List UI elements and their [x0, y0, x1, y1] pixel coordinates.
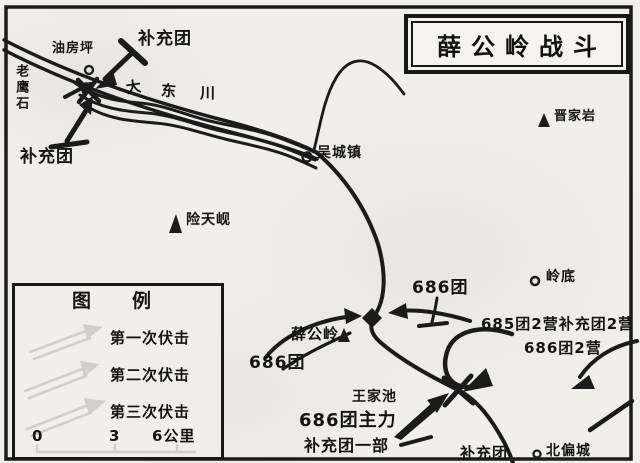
- encircling-loop-arrow: [445, 329, 512, 392]
- map-title-inner-border: 薛公岭战斗: [411, 21, 623, 67]
- scale-label-3: 3: [109, 428, 120, 445]
- label-laoyingshi: 老鹰石: [13, 64, 27, 112]
- label-686-main-force: 686团主力: [299, 411, 397, 431]
- label-buchongtuan-southeast: 补充团: [460, 445, 508, 462]
- battle-map: 薛公岭战斗 图 例 第一次伏击 第二次伏击 第三次伏击 0 3 6公里 油房坪 …: [0, 0, 640, 463]
- attack-arrow-southwest: [51, 96, 93, 147]
- legend-item-third-ambush: 第三次伏击: [110, 404, 190, 421]
- highway-northwest: [4, 40, 317, 159]
- youfangping-circle: [85, 66, 93, 74]
- legend-title-char-2: 例: [132, 291, 152, 312]
- attack-arrow-686-east: [388, 298, 470, 326]
- label-686-regiment-west: 686团: [249, 354, 306, 373]
- scale-label-6km: 6公里: [152, 428, 195, 445]
- label-buchongtuan-part: 补充团一部: [304, 437, 389, 455]
- mountain-icon-jinjiayan: [538, 113, 550, 127]
- attack-arrow-686-main: [394, 393, 449, 445]
- label-xuegongling: 薛公岭: [291, 326, 339, 343]
- label-beipiancheng: 北偏城: [546, 444, 591, 459]
- label-river-char-2: 东: [160, 82, 177, 100]
- label-wuchengzhen: 吴城镇: [317, 146, 362, 161]
- map-title: 薛公岭战斗: [427, 27, 607, 62]
- label-685-2nd-battalion-group: 685团2营补充团2营: [481, 316, 634, 333]
- mountain-icon-xiantianxian: [169, 214, 182, 233]
- label-river-char-3: 川: [200, 85, 216, 102]
- legend-item-second-ambush: 第二次伏击: [110, 367, 190, 384]
- label-youfangping: 油房坪: [52, 42, 94, 56]
- map-title-box: 薛公岭战斗: [404, 14, 630, 74]
- label-xiantianxian: 险天岘: [186, 213, 231, 228]
- beipiancheng-circle: [534, 451, 541, 458]
- attack-arrow-southeast: [590, 401, 632, 430]
- legend-item-first-ambush: 第一次伏击: [110, 330, 190, 347]
- label-686-2nd-battalion: 686团2营: [524, 340, 602, 357]
- label-wangjiachi: 王家池: [352, 390, 397, 405]
- label-buchongtuan-north: 补充团: [138, 30, 192, 49]
- scale-label-0: 0: [32, 428, 43, 445]
- label-lingdi: 岭底: [546, 270, 576, 285]
- legend-title-char-1: 图: [72, 291, 92, 312]
- label-686-regiment-north: 686团: [412, 279, 469, 298]
- label-river-char-1: 大: [125, 78, 143, 97]
- river-upper-branch: [314, 61, 404, 150]
- label-jinjiayan: 晋家岩: [554, 110, 596, 124]
- lingdi-circle: [531, 277, 539, 285]
- label-buchongtuan-west: 补充团: [20, 148, 74, 167]
